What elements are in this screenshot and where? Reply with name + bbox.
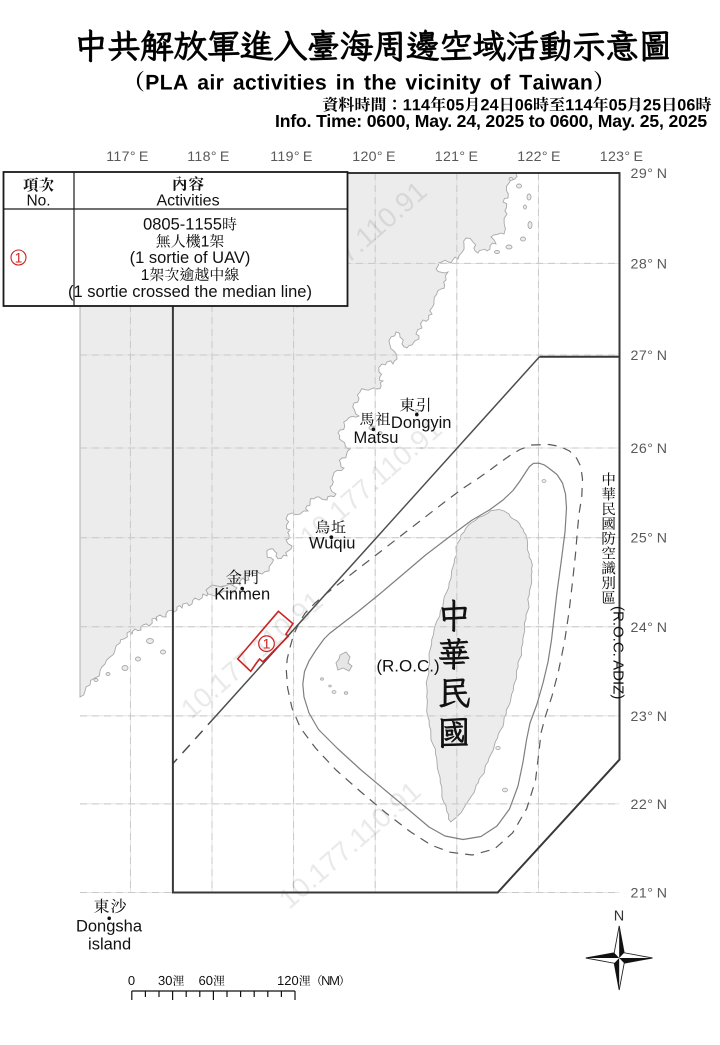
svg-text:26° N: 26° N — [631, 441, 668, 457]
svg-text:(1 sortie crossed the median l: (1 sortie crossed the median line) — [68, 283, 312, 301]
svg-text:24° N: 24° N — [631, 620, 668, 636]
svg-text:123° E: 123° E — [600, 149, 643, 165]
svg-text:118° E: 118° E — [187, 149, 229, 165]
svg-text:Dongyin: Dongyin — [391, 414, 452, 432]
svg-text:Activities: Activities — [156, 193, 219, 210]
svg-text:1: 1 — [263, 636, 271, 652]
svg-text:Dongsha: Dongsha — [76, 918, 143, 936]
svg-text:119° E: 119° E — [270, 149, 312, 165]
svg-text:1: 1 — [15, 250, 23, 265]
svg-text:27° N: 27° N — [631, 348, 668, 364]
svg-text:Info. Time: 0600, May. 24, 202: Info. Time: 0600, May. 24, 2025 to 0600,… — [275, 111, 707, 131]
svg-text:23° N: 23° N — [631, 709, 668, 725]
svg-text:122° E: 122° E — [517, 149, 560, 165]
svg-text:21° N: 21° N — [631, 886, 668, 902]
svg-text:Matsu: Matsu — [354, 429, 399, 447]
svg-text:0: 0 — [128, 973, 135, 988]
svg-text:29° N: 29° N — [631, 166, 668, 182]
svg-text:(1 sortie of UAV): (1 sortie of UAV) — [130, 249, 251, 267]
svg-text:120° E: 120° E — [352, 149, 395, 165]
svg-text:117° E: 117° E — [106, 149, 148, 165]
svg-text:28° N: 28° N — [631, 256, 668, 272]
svg-text:121° E: 121° E — [435, 149, 478, 165]
svg-text:Wuqiu: Wuqiu — [309, 535, 355, 553]
svg-text:Kinmen: Kinmen — [214, 586, 270, 604]
svg-text:island: island — [88, 936, 131, 954]
svg-text:22° N: 22° N — [631, 797, 668, 813]
svg-text:No.: No. — [26, 193, 50, 210]
svg-text:(R.O.C.): (R.O.C.) — [376, 657, 439, 676]
svg-text:25° N: 25° N — [631, 531, 668, 547]
svg-text:(R.O.C. ADIZ): (R.O.C. ADIZ) — [610, 606, 627, 699]
svg-text:N: N — [614, 909, 624, 925]
